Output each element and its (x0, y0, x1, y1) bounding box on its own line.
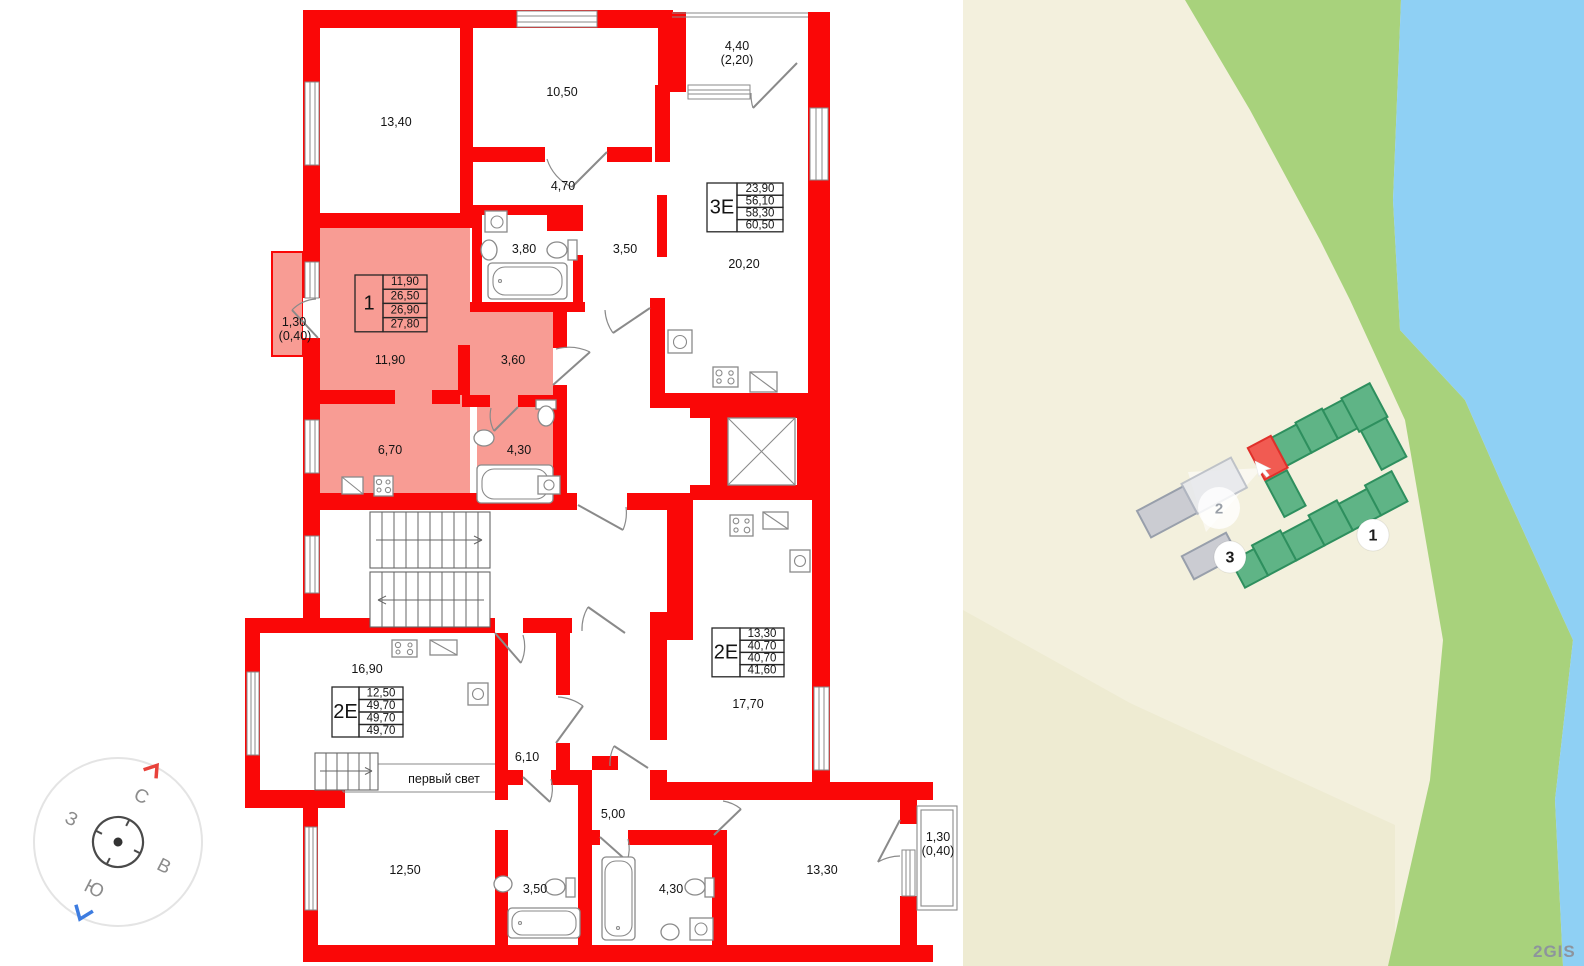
table-area-value: 13,30 (748, 628, 777, 640)
room-area-label: (0,40) (922, 844, 955, 858)
window (305, 827, 317, 910)
stairs-main (370, 512, 490, 627)
room-area-label: 6,70 (378, 443, 402, 457)
door (553, 347, 590, 385)
table-area-value: 60,50 (746, 220, 775, 232)
bathtub-icon (488, 263, 567, 299)
washer-icon (690, 918, 713, 940)
door (878, 820, 900, 862)
door (605, 308, 650, 333)
map-marker-1[interactable]: 1 (1357, 519, 1389, 551)
washer-icon (668, 330, 692, 353)
room-area-label: 16,90 (351, 662, 382, 676)
room-area-label: 17,70 (732, 697, 763, 711)
stove-icon (730, 515, 753, 536)
bathtub-icon (508, 908, 580, 938)
map-marker-2[interactable]: 2 (1198, 487, 1240, 529)
door (556, 697, 583, 743)
door (751, 63, 797, 108)
table-apartment-type: 3Е (710, 196, 734, 218)
door (523, 777, 552, 802)
table-area-value: 23,90 (746, 183, 775, 195)
room-area-label: (0,40) (279, 329, 312, 343)
window (305, 536, 319, 593)
window (305, 262, 319, 298)
table-area-value: 27,80 (391, 319, 420, 331)
void-label: первый свет (408, 772, 480, 786)
room-area-label: 4,30 (507, 443, 531, 457)
table-area-value: 26,50 (391, 290, 420, 302)
fridge-icon (763, 512, 788, 529)
basin-icon (474, 430, 494, 446)
room-area-label: 4,70 (551, 179, 575, 193)
room-area-label: 1,30 (282, 315, 306, 329)
map-watermark: 2GIS (1533, 942, 1576, 961)
table-apartment-type: 1 (363, 292, 374, 314)
room-area-label: 5,00 (601, 807, 625, 821)
basin-icon (661, 924, 679, 940)
table-area-value: 41,60 (748, 665, 777, 677)
window (814, 687, 829, 770)
map-marker-3[interactable]: 3 (1214, 541, 1246, 573)
table-area-value: 49,70 (367, 712, 396, 724)
room-area-label: 11,90 (375, 353, 405, 367)
table-apartment-type: 2Е (333, 701, 357, 723)
room-area-label: 20,20 (728, 257, 759, 271)
window (305, 420, 319, 473)
stairs-small (315, 753, 378, 790)
room-area-label: 3,60 (501, 353, 525, 367)
stove-icon (392, 640, 417, 657)
fridge-icon (750, 372, 777, 392)
washer-icon (485, 211, 507, 232)
balcony-bottom-right (917, 806, 957, 910)
room-area-label: (2,20) (721, 53, 754, 67)
washer-icon (468, 683, 488, 705)
room-area-label: 4,30 (659, 882, 683, 896)
room-area-label: 6,10 (515, 750, 539, 764)
table-area-value: 11,90 (391, 276, 419, 288)
scene-svg: 2 1 3 2GIS (0, 0, 1584, 966)
stove-icon (374, 476, 393, 496)
elevator-icon (728, 418, 795, 485)
window (247, 672, 259, 755)
table-area-value: 26,90 (391, 305, 420, 317)
table-apartment-type: 2Е (714, 641, 738, 663)
door (582, 607, 625, 633)
room-area-label: 12,50 (389, 863, 420, 877)
mini-map[interactable]: 2 1 3 2GIS (963, 0, 1584, 966)
compass-rose: С В Ю З (4, 727, 232, 957)
floorplan-page: 2 1 3 2GIS (0, 0, 1584, 966)
stove-icon (713, 367, 738, 387)
room-area-label: 10,50 (546, 85, 577, 99)
fridge-icon (342, 477, 363, 494)
window (517, 11, 597, 27)
marker-3-label: 3 (1226, 550, 1235, 567)
marker-1-label: 1 (1369, 528, 1378, 545)
apartment-table[interactable]: 13,3040,7040,7041,602Е (712, 628, 784, 677)
table-area-value: 58,30 (746, 208, 775, 220)
door (578, 505, 626, 530)
bathtub-icon (602, 857, 635, 940)
washer-icon (790, 550, 810, 572)
basin-icon (481, 240, 497, 260)
table-area-value: 49,70 (367, 725, 396, 737)
basin-icon (494, 876, 512, 892)
window (305, 82, 319, 165)
room-area-label: 3,80 (512, 242, 536, 256)
floor-plan: 13,4010,504,40(2,20)4,703,803,5020,201,3… (4, 10, 957, 962)
fridge-icon (430, 640, 457, 655)
toilet-icon (685, 878, 714, 897)
marker-2-label: 2 (1215, 500, 1223, 517)
window (688, 85, 750, 99)
room-area-label: 4,40 (725, 39, 749, 53)
window (902, 850, 915, 896)
table-area-value: 49,70 (367, 700, 396, 712)
table-area-value: 40,70 (748, 640, 777, 652)
apartment-table[interactable]: 23,9056,1058,3060,503Е (707, 183, 783, 232)
door (714, 801, 741, 835)
room-area-label: 1,30 (926, 830, 950, 844)
table-area-value: 12,50 (367, 687, 396, 699)
room-area-label: 3,50 (523, 882, 547, 896)
table-area-value: 56,10 (746, 195, 775, 207)
toilet-icon (547, 240, 577, 260)
window (810, 108, 828, 180)
room-area-label: 3,50 (613, 242, 637, 256)
toilet-icon (545, 878, 575, 897)
room-area-label: 13,30 (806, 863, 837, 877)
toilet-icon (536, 400, 556, 426)
washer-icon (538, 476, 560, 494)
table-area-value: 40,70 (748, 653, 777, 665)
room-area-label: 13,40 (380, 115, 411, 129)
balcony-top-edge (672, 13, 808, 17)
apartment-table[interactable]: 12,5049,7049,7049,702Е (332, 687, 403, 737)
